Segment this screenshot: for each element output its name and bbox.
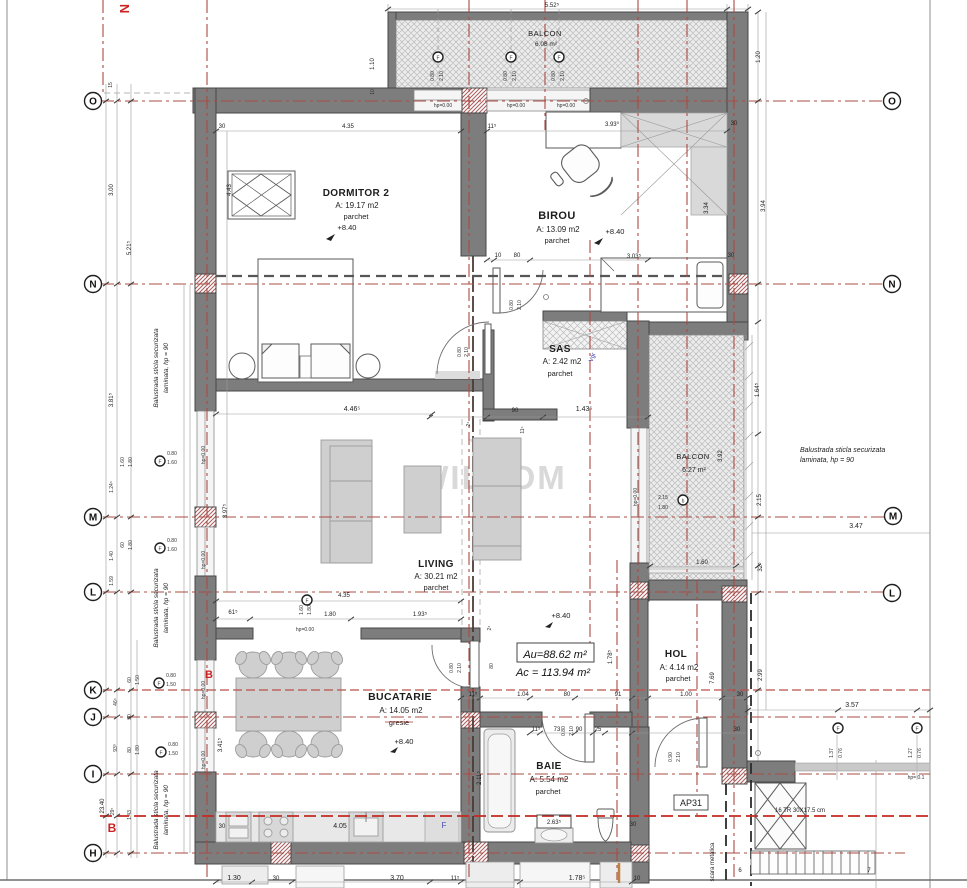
svg-text:BALCON: BALCON [528, 29, 562, 38]
svg-text:parchet: parchet [665, 674, 691, 683]
svg-text:1.40: 1.40 [109, 551, 115, 561]
svg-text:DORMITOR 2: DORMITOR 2 [323, 188, 390, 199]
svg-text:1.24⁵: 1.24⁵ [109, 481, 115, 493]
svg-text:1.78⁵: 1.78⁵ [607, 649, 614, 664]
svg-text:b: b [682, 499, 685, 505]
svg-text:A: 2.42 m2: A: 2.42 m2 [543, 357, 582, 366]
svg-text:1.04: 1.04 [517, 692, 529, 698]
svg-text:5.52⁵: 5.52⁵ [545, 2, 560, 9]
svg-text:A: 14.05 m2: A: 14.05 m2 [379, 706, 423, 715]
svg-text:25: 25 [595, 727, 602, 733]
svg-text:+8.40: +8.40 [338, 223, 357, 232]
svg-text:hp=0.00: hp=0.00 [434, 103, 452, 109]
svg-text:3.57: 3.57 [845, 702, 859, 709]
svg-text:0.80: 0.80 [168, 742, 178, 748]
svg-text:J: J [90, 713, 96, 724]
svg-text:1.60: 1.60 [120, 457, 126, 467]
svg-text:4.35: 4.35 [338, 593, 350, 599]
svg-text:N: N [888, 280, 895, 291]
svg-text:hp=0.00: hp=0.00 [507, 103, 525, 109]
svg-text:BALCON: BALCON [676, 452, 709, 461]
svg-text:1.20: 1.20 [756, 51, 762, 63]
svg-text:0.80: 0.80 [167, 538, 177, 544]
svg-text:1.59: 1.59 [109, 576, 115, 586]
svg-text:B: B [108, 821, 117, 835]
svg-text:30: 30 [734, 727, 741, 733]
svg-text:30: 30 [273, 876, 280, 882]
svg-text:1.00: 1.00 [680, 692, 692, 698]
svg-text:laminata, hp = 90: laminata, hp = 90 [163, 343, 170, 393]
svg-text:90: 90 [576, 727, 583, 733]
svg-text:0.80: 0.80 [449, 663, 455, 673]
svg-text:1.80: 1.80 [128, 540, 134, 550]
svg-text:30: 30 [737, 692, 744, 698]
svg-text:3.03⁵: 3.03⁵ [627, 253, 642, 260]
svg-text:hp=0.00: hp=0.00 [201, 751, 207, 769]
svg-text:1.64⁵: 1.64⁵ [754, 382, 761, 397]
svg-text:F: F [557, 56, 560, 62]
svg-text:SAS: SAS [549, 344, 571, 355]
svg-text:Balustrada sticla securizata: Balustrada sticla securizata [153, 568, 160, 648]
svg-text:16 TR 30X17.5 cm: 16 TR 30X17.5 cm [775, 808, 825, 814]
svg-text:Au=88.62 m²: Au=88.62 m² [522, 649, 587, 661]
svg-text:11⁵: 11⁵ [520, 426, 526, 433]
svg-text:1.80: 1.80 [324, 612, 336, 618]
svg-text:F: F [159, 751, 162, 757]
svg-text:parchet: parchet [547, 369, 573, 378]
svg-text:2.11⁵: 2.11⁵ [476, 771, 483, 785]
svg-text:F: F [442, 821, 447, 830]
svg-text:BUCATARIE: BUCATARIE [368, 691, 432, 703]
svg-text:0.80: 0.80 [509, 300, 515, 310]
svg-text:0.76: 0.76 [917, 748, 923, 758]
svg-text:1.60: 1.60 [299, 605, 305, 615]
svg-text:F: F [915, 727, 918, 733]
svg-text:11⁵: 11⁵ [451, 875, 460, 882]
svg-text:F: F [836, 727, 839, 733]
svg-text:1.80: 1.80 [307, 605, 313, 615]
svg-text:1.78⁵: 1.78⁵ [569, 875, 586, 882]
svg-text:5.21⁵: 5.21⁵ [126, 240, 133, 255]
svg-text:30: 30 [219, 824, 226, 830]
svg-text:1.60: 1.60 [167, 547, 177, 553]
svg-text:hp=0.00: hp=0.00 [633, 488, 639, 506]
svg-text:30: 30 [219, 124, 226, 130]
svg-text:11⁵: 11⁵ [488, 123, 497, 130]
svg-text:F: F [305, 599, 308, 605]
svg-text:hp=0.00: hp=0.00 [201, 446, 207, 464]
svg-text:A: 30.21 m2: A: 30.21 m2 [414, 572, 458, 581]
svg-text:hp=0.00: hp=0.00 [201, 681, 207, 699]
svg-text:60: 60 [127, 677, 133, 683]
svg-text:2⁴: 2⁴ [487, 626, 493, 631]
svg-text:4.46⁵: 4.46⁵ [344, 406, 361, 413]
svg-text:O: O [888, 97, 896, 108]
svg-text:F: F [158, 460, 161, 466]
svg-text:F: F [158, 547, 161, 553]
svg-text:0.80: 0.80 [457, 347, 463, 357]
svg-text:2.10: 2.10 [560, 71, 566, 81]
svg-text:3.93⁰: 3.93⁰ [605, 121, 620, 128]
svg-text:B: B [205, 669, 213, 681]
svg-text:30: 30 [731, 121, 738, 127]
svg-text:1.43⁵: 1.43⁵ [576, 406, 593, 413]
svg-text:hp=0.00: hp=0.00 [557, 103, 575, 109]
svg-text:3.97⁵: 3.97⁵ [222, 503, 229, 518]
svg-text:3.47: 3.47 [849, 523, 863, 530]
svg-text:+8.40: +8.40 [552, 611, 571, 620]
svg-text:M: M [89, 513, 97, 524]
svg-text:1.43: 1.43 [127, 810, 133, 820]
svg-text:F: F [509, 56, 512, 62]
svg-text:1.50: 1.50 [168, 751, 178, 757]
svg-text:2.10: 2.10 [439, 71, 445, 81]
svg-text:I: I [92, 770, 95, 781]
svg-text:2.10: 2.10 [676, 752, 682, 762]
svg-text:3.00: 3.00 [109, 184, 115, 196]
svg-text:3.92: 3.92 [718, 450, 724, 462]
svg-text:3.41⁵: 3.41⁵ [217, 737, 224, 752]
svg-text:46⁵: 46⁵ [113, 698, 119, 706]
svg-text:BIROU: BIROU [538, 210, 575, 222]
svg-text:2.10: 2.10 [457, 663, 463, 673]
svg-text:2⁴: 2⁴ [466, 422, 472, 427]
svg-text:2.15: 2.15 [757, 494, 763, 506]
svg-text:+8.40: +8.40 [606, 227, 625, 236]
svg-text:0.80: 0.80 [551, 71, 557, 81]
svg-text:93⁰: 93⁰ [113, 744, 119, 752]
svg-text:1.93⁵: 1.93⁵ [413, 611, 428, 618]
svg-text:H: H [89, 849, 96, 860]
svg-text:HOL: HOL [665, 649, 687, 660]
svg-text:2.10: 2.10 [517, 300, 523, 310]
svg-text:LIVING: LIVING [418, 559, 454, 570]
svg-text:BAIE: BAIE [536, 761, 562, 772]
svg-text:10: 10 [495, 253, 502, 259]
svg-text:A: 19.17 m2: A: 19.17 m2 [335, 201, 379, 210]
svg-text:N: N [117, 4, 132, 13]
svg-text:80: 80 [127, 747, 133, 753]
svg-text:M: M [889, 512, 897, 523]
svg-text:laminata, hp = 90: laminata, hp = 90 [163, 785, 170, 835]
svg-text:K: K [89, 686, 97, 697]
svg-text:1.50: 1.50 [166, 682, 176, 688]
svg-text:4.05: 4.05 [333, 823, 347, 830]
svg-text:gresie: gresie [389, 718, 409, 727]
svg-text:1.50: 1.50 [135, 675, 141, 685]
svg-text:2.10: 2.10 [464, 347, 470, 357]
svg-text:3.81⁵: 3.81⁵ [108, 392, 115, 407]
svg-text:Balustrada sticla securizata: Balustrada sticla securizata [153, 770, 160, 850]
svg-text:32⁵: 32⁵ [757, 562, 764, 572]
svg-text:80: 80 [514, 253, 521, 259]
svg-text:1.60: 1.60 [167, 460, 177, 466]
svg-text:0.80: 0.80 [167, 451, 177, 457]
svg-text:F: F [157, 682, 160, 688]
svg-text:4.43: 4.43 [227, 184, 233, 196]
svg-text:A: 13.09 m2: A: 13.09 m2 [536, 225, 580, 234]
svg-text:L: L [90, 588, 96, 599]
svg-text:1.10: 1.10 [370, 58, 376, 70]
svg-text:10: 10 [634, 876, 641, 882]
svg-text:Ac = 113.94 m²: Ac = 113.94 m² [515, 667, 590, 679]
svg-text:1.60: 1.60 [696, 560, 708, 566]
svg-text:0.80: 0.80 [561, 726, 567, 736]
svg-text:parchet: parchet [535, 787, 561, 796]
svg-text:2.10: 2.10 [569, 726, 575, 736]
svg-text:3.34: 3.34 [704, 202, 710, 214]
svg-text:1.30: 1.30 [227, 875, 241, 882]
svg-text:1.27: 1.27 [908, 748, 914, 758]
svg-text:2.10: 2.10 [512, 71, 518, 81]
svg-text:80: 80 [564, 692, 571, 698]
svg-text:hp=0.00: hp=0.00 [296, 627, 314, 633]
svg-text:parchet: parchet [343, 212, 369, 221]
svg-text:O: O [89, 97, 97, 108]
svg-text:30: 30 [127, 714, 133, 720]
svg-text:hp=0.00: hp=0.00 [201, 551, 207, 569]
svg-text:parchet: parchet [544, 236, 570, 245]
svg-text:parchet: parchet [423, 583, 449, 592]
svg-text:60: 60 [120, 542, 126, 548]
svg-text:laminata, hp = 90: laminata, hp = 90 [800, 457, 854, 464]
svg-text:1.37: 1.37 [829, 748, 835, 758]
svg-text:1.80: 1.80 [128, 457, 134, 467]
svg-text:30: 30 [728, 253, 735, 259]
svg-text:6.27 m²: 6.27 m² [682, 467, 706, 474]
svg-text:73: 73 [554, 727, 561, 733]
svg-text:Balustrada sticla securizata: Balustrada sticla securizata [800, 447, 885, 454]
svg-text:7.69: 7.69 [710, 672, 716, 684]
svg-text:AP31: AP31 [680, 798, 702, 808]
svg-text:90: 90 [512, 408, 519, 414]
svg-text:L: L [889, 589, 895, 600]
svg-text:laminata, hp = 90: laminata, hp = 90 [163, 583, 170, 633]
svg-text:scara metalica: scara metalica [710, 842, 716, 881]
svg-text:F: F [436, 56, 439, 62]
svg-text:2.15: 2.15 [658, 495, 668, 501]
svg-text:Balustrada sticla securizata: Balustrada sticla securizata [153, 328, 160, 408]
svg-text:hp= 0.1: hp= 0.1 [908, 775, 925, 781]
svg-text:A: 5.54 m2: A: 5.54 m2 [530, 775, 569, 784]
svg-text:1.80: 1.80 [658, 505, 668, 511]
svg-text:4.35: 4.35 [342, 124, 354, 130]
svg-text:23.40: 23.40 [100, 798, 106, 814]
svg-text:3.70: 3.70 [390, 875, 404, 882]
svg-text:11⁵: 11⁵ [532, 726, 541, 733]
svg-text:61⁵: 61⁵ [228, 609, 238, 616]
svg-text:0.80: 0.80 [503, 71, 509, 81]
svg-text:30: 30 [630, 822, 637, 828]
svg-text:91: 91 [615, 692, 622, 698]
svg-text:.29⁵: .29⁵ [110, 807, 116, 816]
svg-text:0.76: 0.76 [838, 748, 844, 758]
svg-text:0.90: 0.90 [668, 752, 674, 762]
svg-text:2.99: 2.99 [758, 669, 764, 681]
svg-text:80: 80 [489, 663, 495, 669]
svg-text:11⁵: 11⁵ [469, 691, 478, 698]
svg-text:6.08 m²: 6.08 m² [535, 41, 558, 48]
svg-text:A: 4.14 m2: A: 4.14 m2 [660, 663, 699, 672]
svg-text:0.80: 0.80 [430, 71, 436, 81]
svg-text:15: 15 [108, 82, 114, 88]
svg-text:2.63⁵: 2.63⁵ [547, 819, 562, 826]
svg-text:1.80: 1.80 [135, 745, 141, 755]
svg-text:10: 10 [370, 89, 376, 95]
svg-text:0.80: 0.80 [166, 673, 176, 679]
svg-text:N: N [89, 280, 96, 291]
svg-text:+8.40: +8.40 [395, 737, 414, 746]
svg-text:3.94: 3.94 [761, 200, 767, 212]
